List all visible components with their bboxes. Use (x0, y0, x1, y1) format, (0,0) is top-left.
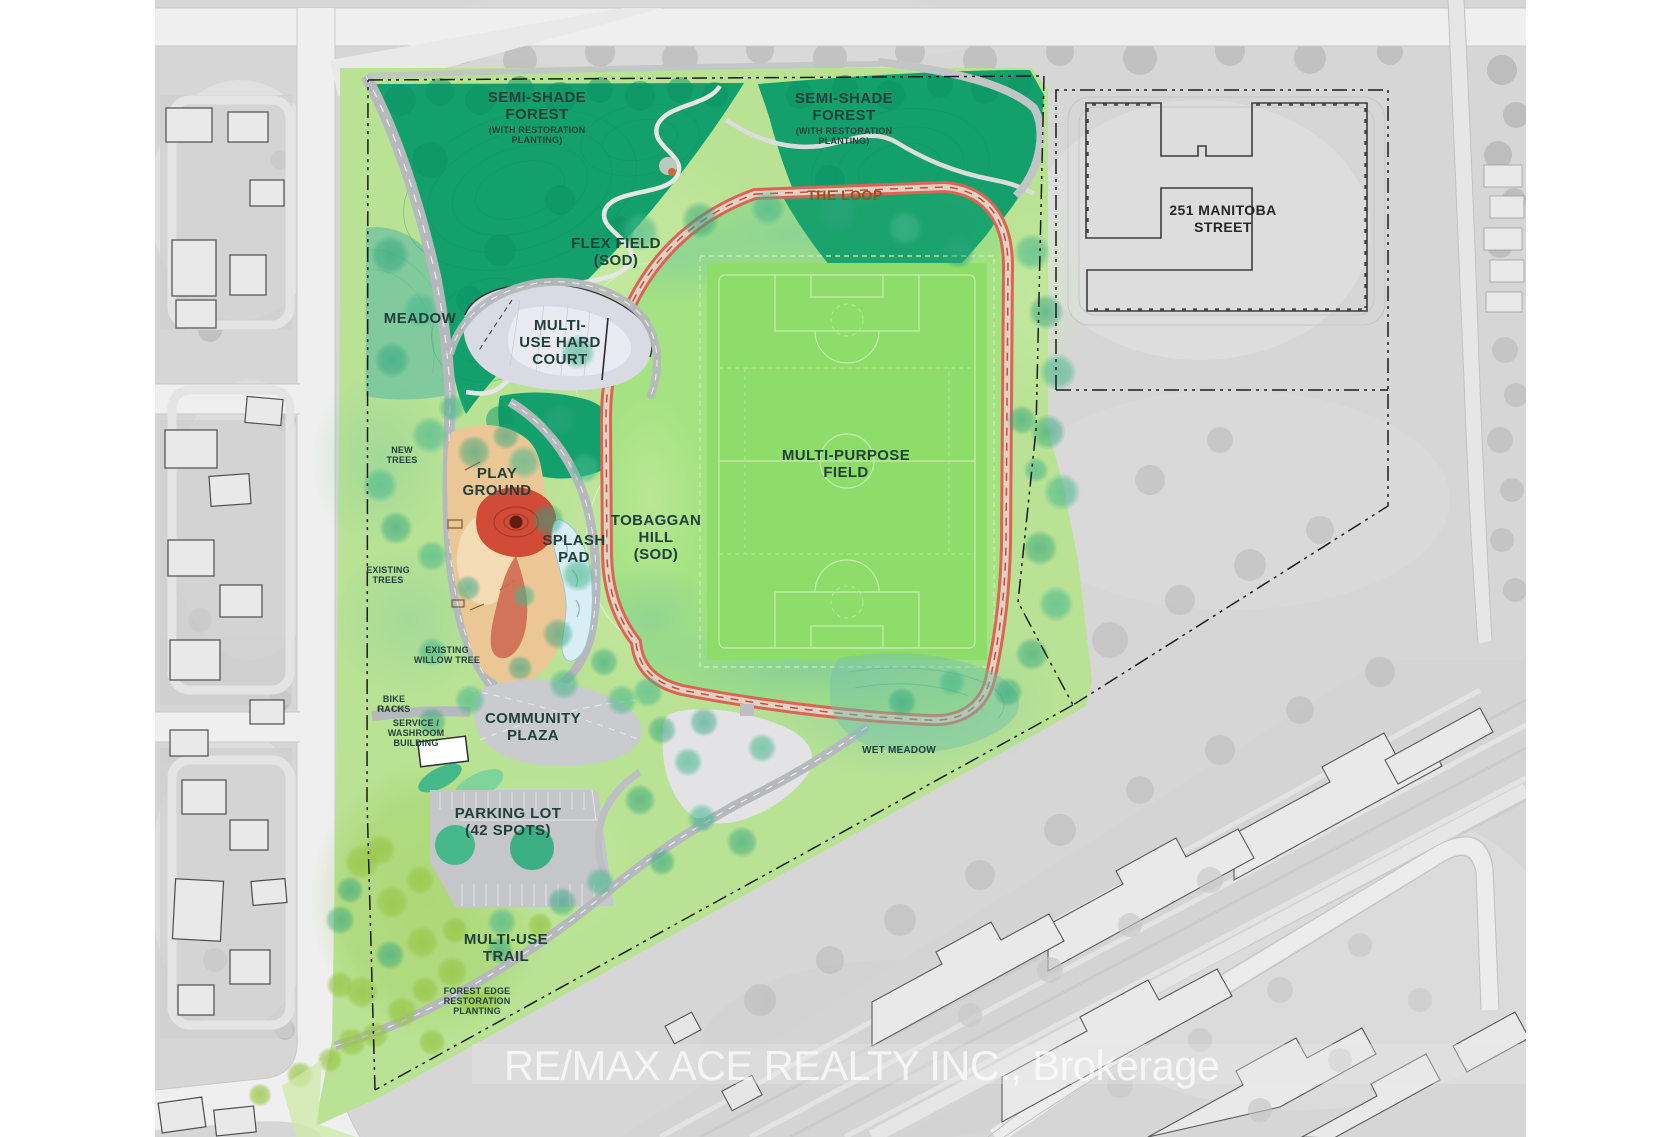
svg-text:THE LOOP: THE LOOP (807, 187, 883, 203)
svg-text:WASHROOM: WASHROOM (388, 728, 445, 738)
svg-text:PLANTING): PLANTING) (819, 136, 870, 146)
svg-text:STREET: STREET (1194, 219, 1252, 235)
svg-text:(SOD): (SOD) (634, 546, 679, 563)
svg-text:WILLOW TREE: WILLOW TREE (414, 655, 480, 665)
svg-text:MULTI-: MULTI- (534, 317, 586, 334)
svg-text:RE/MAX ACE REALTY INC., Broker: RE/MAX ACE REALTY INC., Brokerage (504, 1042, 1219, 1089)
svg-text:COURT: COURT (532, 351, 587, 368)
svg-text:RACKS: RACKS (377, 704, 410, 714)
svg-text:USE HARD: USE HARD (519, 334, 601, 351)
svg-text:SERVICE /: SERVICE / (393, 718, 439, 728)
svg-text:RESTORATION: RESTORATION (444, 996, 511, 1006)
svg-text:(42 SPOTS): (42 SPOTS) (465, 822, 551, 839)
svg-text:TOBAGGAN: TOBAGGAN (611, 512, 701, 529)
svg-text:MULTI-USE: MULTI-USE (464, 931, 548, 948)
svg-text:PARKING LOT: PARKING LOT (455, 805, 562, 822)
svg-text:PLAY: PLAY (477, 465, 517, 482)
svg-text:TRAIL: TRAIL (483, 948, 529, 965)
svg-text:TREES: TREES (372, 575, 403, 585)
svg-text:FOREST EDGE: FOREST EDGE (444, 986, 511, 996)
svg-text:COMMUNITY: COMMUNITY (485, 710, 581, 727)
svg-text:EXISTING: EXISTING (366, 565, 410, 575)
svg-text:251 MANITOBA: 251 MANITOBA (1169, 202, 1276, 218)
svg-text:FOREST: FOREST (505, 106, 568, 123)
svg-text:PLANTING): PLANTING) (512, 135, 563, 145)
svg-text:BIKE: BIKE (383, 694, 405, 704)
svg-text:FOREST: FOREST (812, 107, 875, 124)
svg-text:NEW: NEW (391, 445, 413, 455)
svg-text:EXISTING: EXISTING (425, 645, 469, 655)
svg-text:GROUND: GROUND (462, 482, 531, 499)
svg-text:FLEX FIELD: FLEX FIELD (571, 235, 661, 252)
svg-text:PAD: PAD (558, 549, 590, 566)
svg-text:BUILDING: BUILDING (393, 738, 438, 748)
svg-text:FIELD: FIELD (823, 464, 868, 481)
svg-text:SEMI-SHADE: SEMI-SHADE (795, 90, 893, 107)
svg-text:PLANTING: PLANTING (453, 1006, 501, 1016)
svg-text:(SOD): (SOD) (594, 252, 639, 269)
svg-text:PLAZA: PLAZA (507, 727, 559, 744)
svg-text:SPLASH: SPLASH (542, 532, 605, 549)
svg-text:TREES: TREES (386, 455, 417, 465)
svg-text:(WITH RESTORATION: (WITH RESTORATION (489, 125, 586, 135)
svg-text:SEMI-SHADE: SEMI-SHADE (488, 89, 586, 106)
svg-text:MEADOW: MEADOW (384, 310, 457, 327)
svg-text:(WITH RESTORATION: (WITH RESTORATION (796, 126, 893, 136)
svg-text:WET MEADOW: WET MEADOW (862, 745, 936, 756)
svg-text:HILL: HILL (639, 529, 674, 546)
svg-text:MULTI-PURPOSE: MULTI-PURPOSE (782, 447, 910, 464)
